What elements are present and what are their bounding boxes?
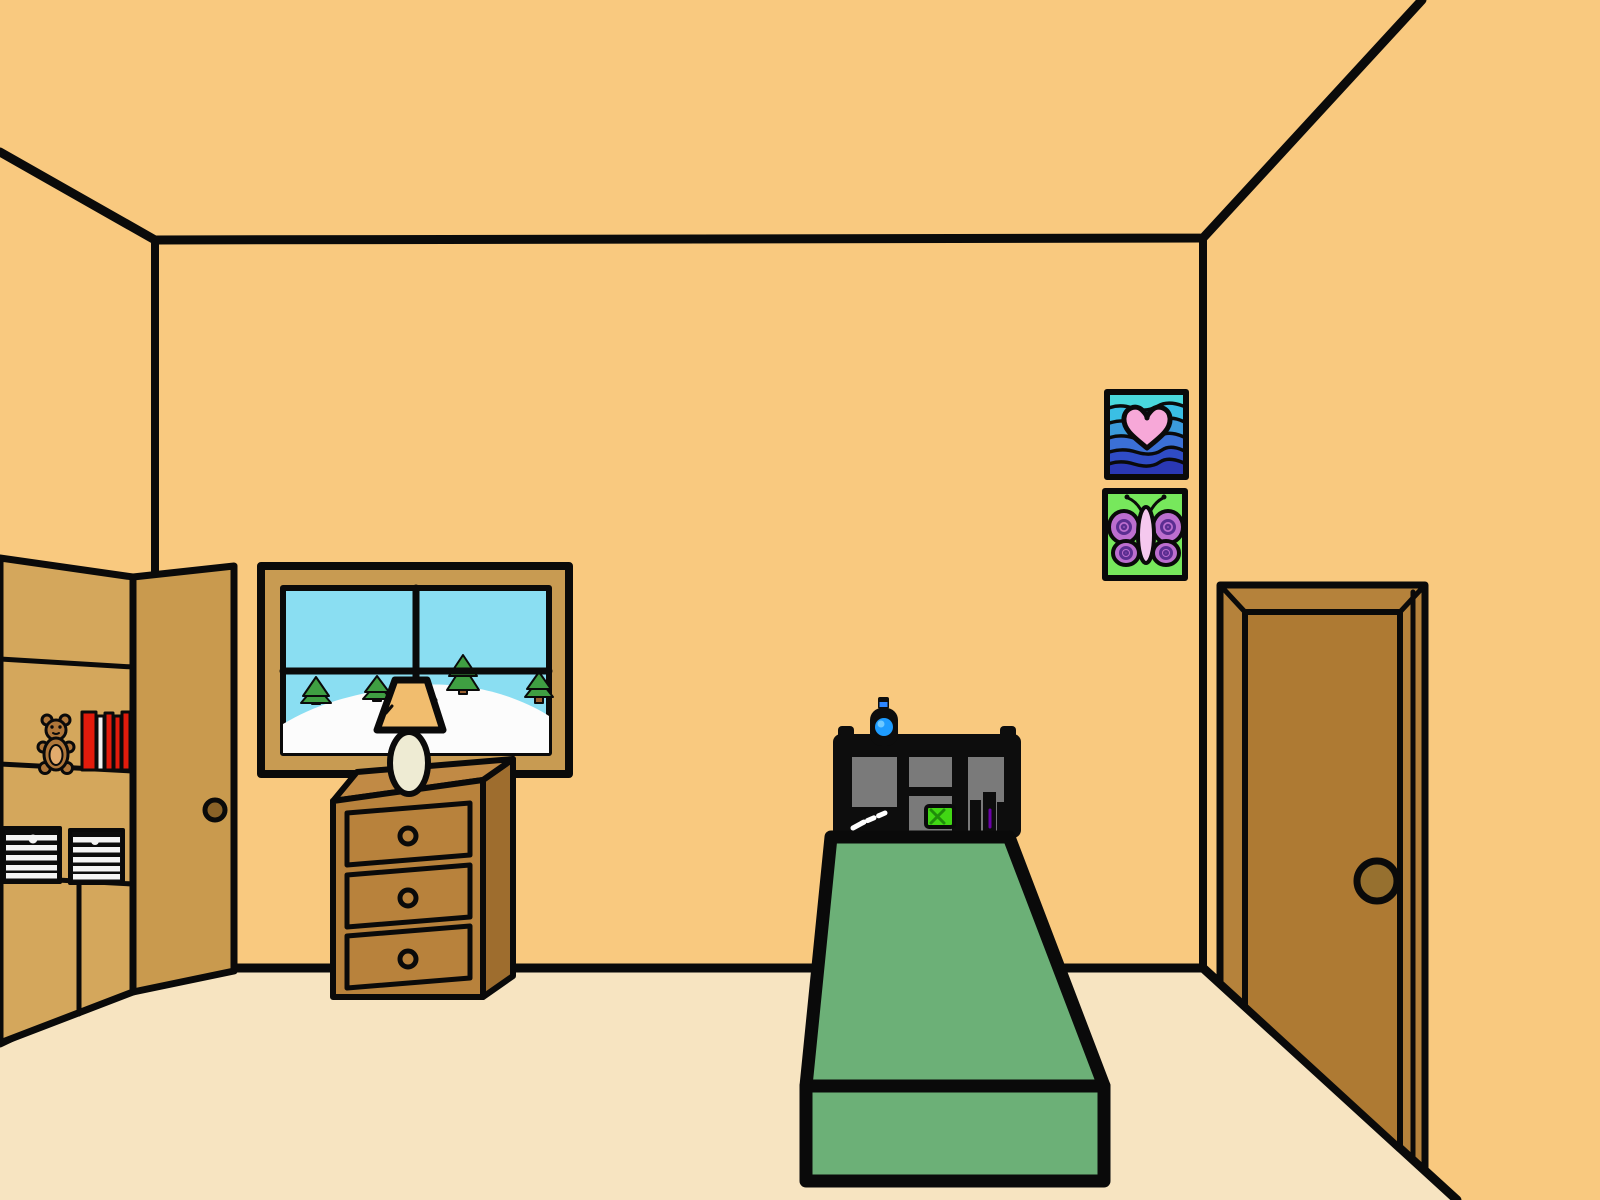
shelf-books[interactable] [82,712,130,770]
closet-interior-panel [0,558,133,1043]
lamp-base[interactable] [390,732,428,794]
crate-stripe [73,866,120,872]
crate-stripe [6,845,57,851]
dresser-side [483,759,513,997]
antenna-tip [1125,495,1130,500]
butterfly-wing [1153,541,1179,565]
bear-eye-right [58,725,61,728]
book [114,716,121,770]
closet-door-panel[interactable] [133,566,234,992]
closet-door-knob[interactable] [205,800,225,820]
book [105,713,113,770]
teddy-bear[interactable] [38,715,74,774]
crate-stripe [6,855,57,861]
potion-liquid [875,718,893,736]
crate-dot [91,837,99,845]
striped-crate-left[interactable] [3,828,60,882]
closet-door[interactable] [133,566,234,992]
butterfly-body [1138,507,1154,563]
drawer-knob[interactable] [400,828,416,844]
bottle-cap-band [880,702,888,707]
closet [0,558,234,1043]
striped-crate-right[interactable] [70,830,123,883]
drawer-knob[interactable] [400,951,416,967]
room-scene [0,0,1600,1200]
crate-stripe [73,874,120,880]
bear-eye-left [50,725,53,728]
crate-stripe [6,865,57,871]
dresser [333,759,513,997]
butterfly-wing [1109,511,1139,543]
bear-belly [50,745,63,765]
drawer-1[interactable] [347,803,470,865]
butterfly-wing [1153,511,1183,543]
book [82,712,96,770]
crate-stripe [73,857,120,863]
bear-mouth [53,733,59,734]
crate-stripe [73,847,120,853]
drawer-2[interactable] [347,865,470,927]
potion-glow [878,721,885,728]
picture-butterfly[interactable] [1105,491,1185,578]
dark-item [997,802,1004,832]
cubby-middle-top[interactable] [909,757,952,787]
crate-dot [29,835,38,844]
exit-door-knob[interactable] [1357,861,1397,901]
treasure-chest[interactable] [926,806,954,827]
cubby-left[interactable] [852,757,897,807]
book [122,712,130,770]
blanket-front[interactable] [806,1086,1104,1181]
drawer-knob[interactable] [400,890,416,906]
drawer-3[interactable] [347,926,470,988]
dark-item [970,800,981,832]
crate-stripe [6,873,57,879]
picture-heart[interactable] [1104,392,1190,480]
butterfly-wing [1113,541,1139,565]
scene-root [0,0,1600,1200]
book [97,716,104,770]
game-stage [0,0,1600,1200]
headboard[interactable] [833,726,1021,838]
antenna-tip [1162,495,1167,500]
